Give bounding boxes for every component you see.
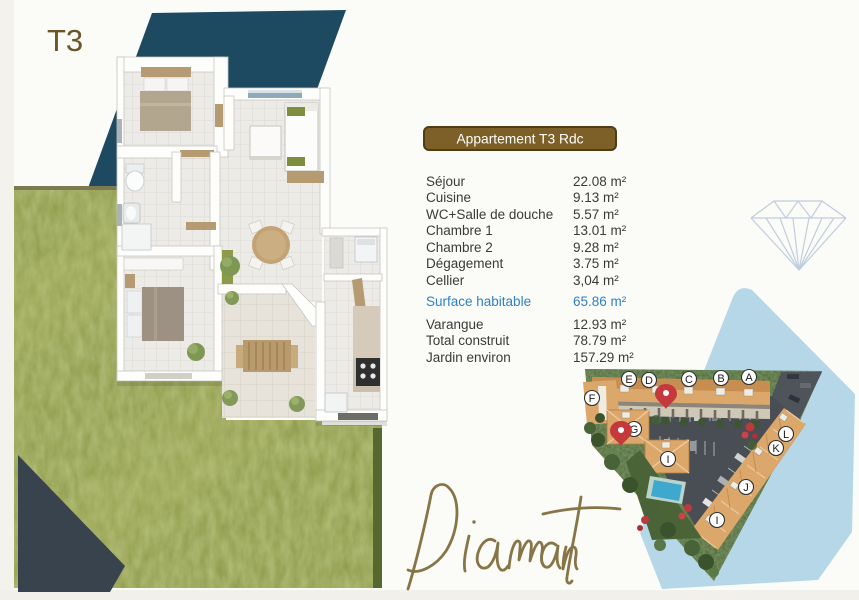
svg-text:157.29 m²: 157.29 m² <box>573 350 634 365</box>
svg-text:Chambre 2: Chambre 2 <box>426 240 493 255</box>
svg-text:J: J <box>743 482 749 494</box>
svg-text:K: K <box>772 443 780 455</box>
svg-text:5.57 m²: 5.57 m² <box>573 207 619 222</box>
svg-text:B: B <box>717 373 724 385</box>
svg-text:I: I <box>666 454 669 466</box>
svg-text:A: A <box>745 372 753 384</box>
svg-text:9.13 m²: 9.13 m² <box>573 190 619 205</box>
svg-text:I: I <box>715 515 718 527</box>
svg-text:13.01 m²: 13.01 m² <box>573 223 627 238</box>
svg-text:22.08 m²: 22.08 m² <box>573 174 627 189</box>
svg-text:C: C <box>685 374 693 386</box>
svg-text:Appartement T3 Rdc: Appartement T3 Rdc <box>456 132 583 147</box>
svg-text:Surface habitable: Surface habitable <box>426 294 531 309</box>
svg-text:F: F <box>589 393 596 405</box>
svg-text:Chambre 1: Chambre 1 <box>426 223 493 238</box>
svg-text:Cuisine: Cuisine <box>426 190 471 205</box>
svg-text:Cellier: Cellier <box>426 273 465 288</box>
svg-text:Séjour: Séjour <box>426 174 466 189</box>
svg-text:3,04 m²: 3,04 m² <box>573 273 619 288</box>
svg-text:12.93 m²: 12.93 m² <box>573 317 627 332</box>
svg-text:78.79 m²: 78.79 m² <box>573 333 627 348</box>
svg-text:E: E <box>625 374 632 386</box>
svg-text:9.28 m²: 9.28 m² <box>573 240 619 255</box>
svg-text:Dégagement: Dégagement <box>426 256 504 271</box>
svg-text:Total construit: Total construit <box>426 333 510 348</box>
svg-text:3.75 m²: 3.75 m² <box>573 256 619 271</box>
svg-text:WC+Salle de douche: WC+Salle de douche <box>426 207 553 222</box>
svg-text:65.86 m²: 65.86 m² <box>573 294 627 309</box>
svg-text:Jardin environ: Jardin environ <box>426 350 511 365</box>
svg-text:D: D <box>645 375 653 387</box>
svg-text:Varangue: Varangue <box>426 317 484 332</box>
svg-text:L: L <box>783 429 789 441</box>
svg-text:T3: T3 <box>47 23 83 58</box>
